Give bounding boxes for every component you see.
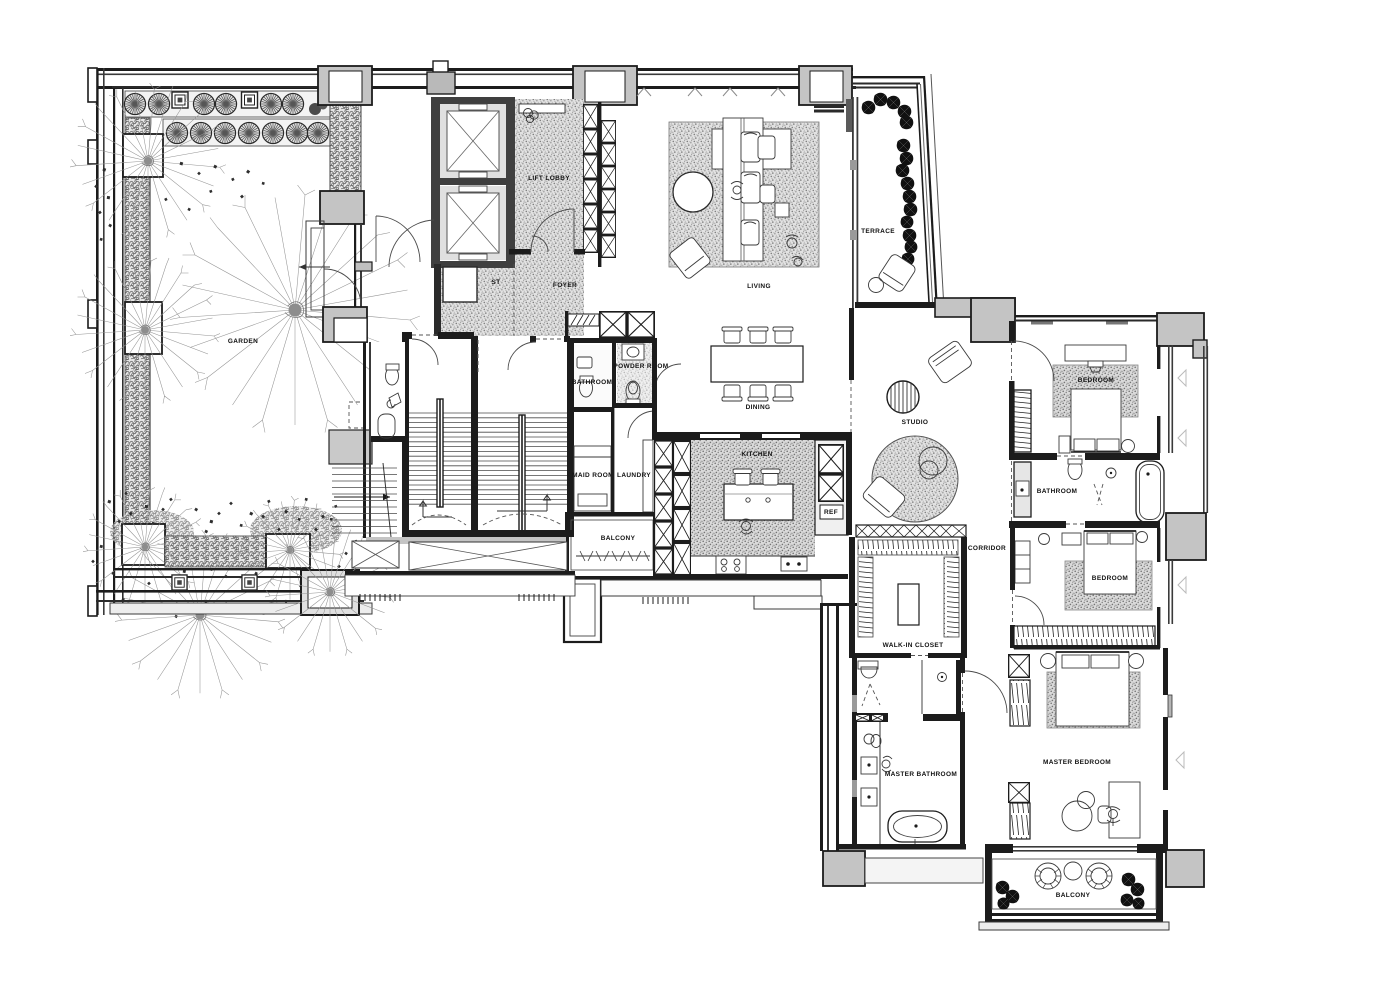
svg-text:BATHROOM: BATHROOM [572, 379, 613, 386]
svg-text:BALCONY: BALCONY [1056, 892, 1091, 899]
svg-text:BEDROOM: BEDROOM [1078, 377, 1114, 384]
svg-text:REF: REF [824, 509, 838, 516]
svg-text:KITCHEN: KITCHEN [741, 451, 772, 458]
svg-text:LAUNDRY: LAUNDRY [617, 472, 651, 479]
svg-text:BEDROOM: BEDROOM [1092, 575, 1128, 582]
svg-text:MASTER BEDROOM: MASTER BEDROOM [1043, 759, 1111, 766]
svg-text:BATHROOM: BATHROOM [1037, 488, 1078, 495]
svg-text:LIVING: LIVING [747, 283, 771, 290]
svg-text:POWDER ROOM: POWDER ROOM [613, 363, 668, 370]
svg-text:FOYER: FOYER [553, 282, 577, 289]
svg-text:WALK-IN CLOSET: WALK-IN CLOSET [883, 642, 944, 649]
svg-text:MASTER BATHROOM: MASTER BATHROOM [885, 771, 957, 778]
svg-text:STUDIO: STUDIO [902, 419, 929, 426]
svg-text:MAID ROOM: MAID ROOM [572, 472, 614, 479]
svg-text:DINING: DINING [746, 404, 771, 411]
svg-text:CORRIDOR: CORRIDOR [968, 545, 1006, 552]
svg-text:TERRACE: TERRACE [861, 228, 895, 235]
svg-text:ST: ST [491, 279, 500, 286]
svg-text:GARDEN: GARDEN [228, 338, 258, 345]
svg-text:BALCONY: BALCONY [601, 535, 636, 542]
svg-text:LIFT LOBBY: LIFT LOBBY [528, 175, 570, 182]
